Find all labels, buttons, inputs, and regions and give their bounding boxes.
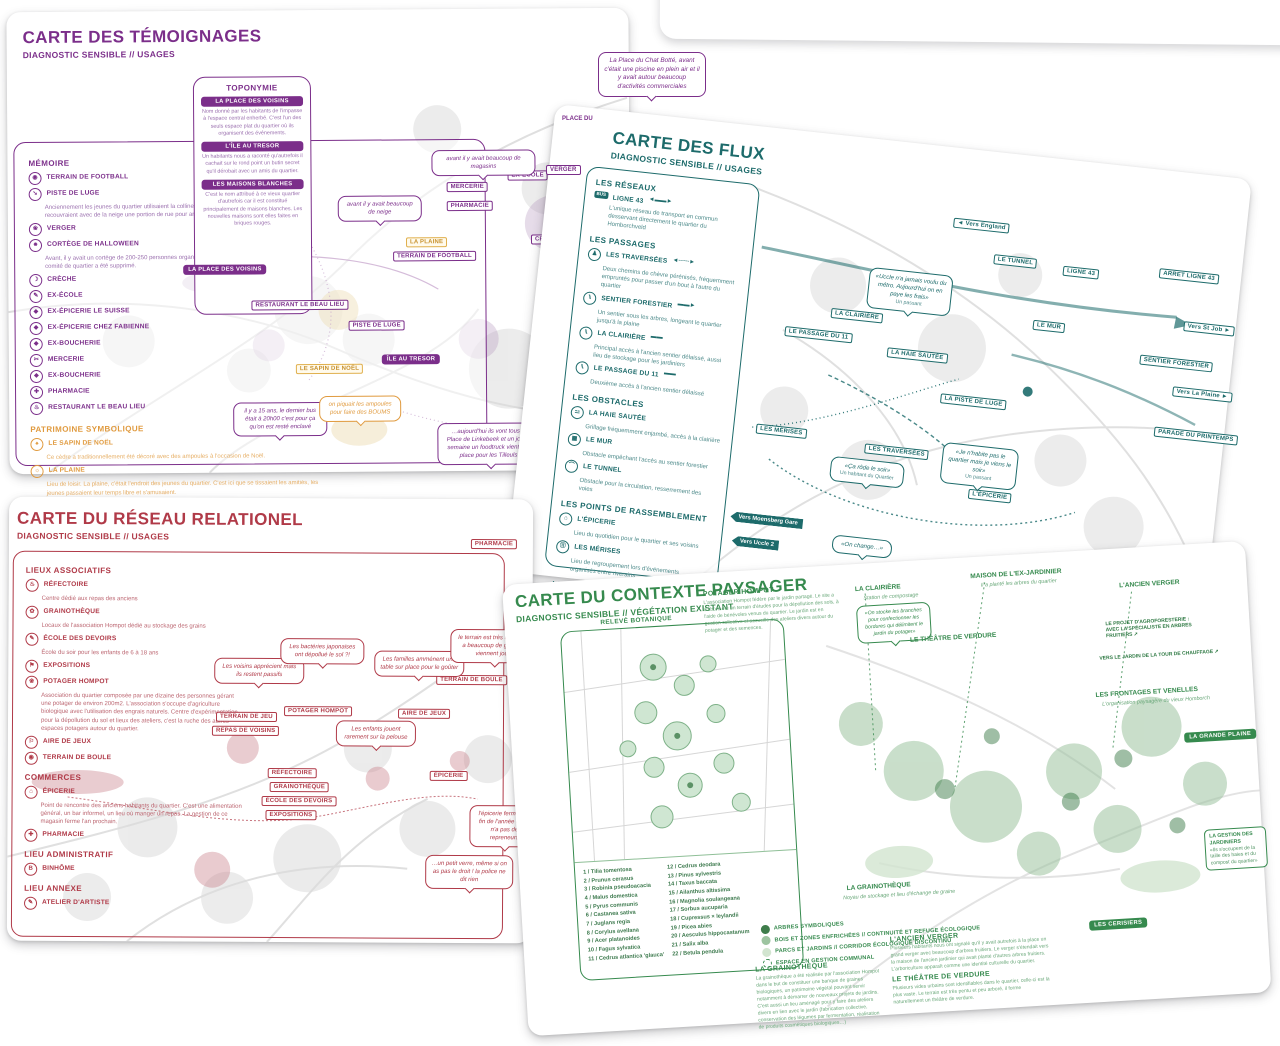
map-label-place-du: PLACE DU bbox=[562, 116, 593, 122]
map-sublabel-maison: Il a planté les arbres du quartier bbox=[981, 578, 1057, 588]
garden-plan-sketch bbox=[561, 619, 796, 862]
map-label-arret-ligne43: ARRET LIGNE 43 bbox=[1159, 268, 1220, 284]
card-reseau: CARTE DU RÉSEAU RELATIONEL DIAGNOSTIC SE… bbox=[7, 497, 533, 944]
swatch-dark-green bbox=[761, 924, 771, 934]
swatch-mid-green bbox=[761, 936, 771, 946]
bubble-neige: avant il y avait beaucoup de neige bbox=[338, 195, 422, 222]
legend-item-icon: ◆ bbox=[29, 306, 42, 319]
patrimoine-item-0: ♠ LE SAPIN DE NOËL bbox=[30, 436, 330, 451]
legend-item-icon: ✂ bbox=[30, 354, 43, 367]
reseau-item-1: ✚ PHARMACIE bbox=[24, 829, 244, 843]
bubble-magasins: avant il y avait beaucoup de magasins bbox=[431, 149, 535, 176]
map-label-refectoire: RÉFECTOIRE bbox=[268, 768, 317, 778]
reseau-item-6: ◉ TERRAIN DE BOULE bbox=[25, 751, 245, 765]
map-tag-vers-uccle2: Vers Uccle 2 bbox=[731, 536, 779, 551]
map-label-traversees: LES TRAVERSÉES bbox=[864, 443, 929, 460]
reseau-item-0: ⌂ ÉPICERIE bbox=[25, 785, 245, 799]
obstacles-list: ⚍ LA HAIE SAUTÉE Grillage fréquemment en… bbox=[562, 405, 722, 507]
map-label-ligne43: LIGNE 43 bbox=[1062, 266, 1099, 280]
section-associatifs: LIEUX ASSOCIATIFS bbox=[26, 566, 246, 576]
map-label-merises: LES MÉRISES bbox=[756, 424, 807, 439]
toponymie-tag-1: L'ÎLE AU TRESOR bbox=[201, 141, 303, 152]
section-administratif: LIEU ADMINISTRATIF bbox=[24, 850, 244, 860]
toponymie-panel: TOPONYMIE LA PLACE DES VOISINS Nom donné… bbox=[193, 76, 313, 315]
page-title: CARTE DU RÉSEAU RELATIONEL bbox=[17, 509, 303, 530]
legend-item-11: ✚ PHARMACIE bbox=[30, 384, 330, 399]
map-label-expositions: EXPOSITIONS bbox=[265, 810, 316, 820]
map-label-restaurant: RESTAURANT LE BEAU LIEU bbox=[251, 300, 348, 311]
map-label-terrain-football: TERRAIN DE FOOTBALL bbox=[393, 251, 476, 262]
map-label-grainotheque: GRAINOTHÈQUE bbox=[270, 782, 329, 792]
legend-item-icon: ➘ bbox=[29, 188, 42, 201]
legend-item-icon: ♨ bbox=[30, 402, 43, 415]
map-label-vers-la-plaine: Vers La Plaine ► bbox=[1172, 386, 1232, 402]
species-col2: 12 / Cedrus deodara13 / Pinus sylvestris… bbox=[667, 859, 751, 959]
section-annexe: LIEU ANNEXE bbox=[24, 884, 244, 894]
map-label-grainotheque: LA GRAINOTHÈQUE bbox=[846, 881, 911, 892]
swatch-light-green bbox=[762, 947, 772, 957]
legend-item-7: ◆ EX-ÉPICERIE CHEZ FABIENNE bbox=[30, 320, 330, 335]
map-label-aire-de-jeux: AIRE DE JEUX bbox=[398, 709, 450, 719]
bubble-bacteries: Les bactéries japonaises ont dépollué le… bbox=[280, 638, 364, 665]
map-label-ancien-verger: L'ANCIEN VERGER bbox=[1119, 579, 1180, 590]
map-label-vers-st-job: Vers St Job ► bbox=[1183, 321, 1235, 336]
map-label-epicerie: L'ÉPICERIE bbox=[968, 489, 1012, 504]
map-label-repas-voisins: REPAS DE VOISINS bbox=[212, 726, 279, 736]
toponymie-heading: TOPONYMIE bbox=[201, 83, 303, 93]
toponymie-tag-2: LES MAISONS BLANCHES bbox=[202, 179, 304, 190]
commerces-list: ⌂ ÉPICERIE Point de rencontre des ancien… bbox=[24, 785, 244, 842]
reseau-item-0: ♨ RÉFECTOIRE bbox=[26, 579, 246, 593]
legend-item-icon: ◉ bbox=[29, 172, 42, 185]
card-paysager: CARTE DU CONTEXTE PAYSAGER DIAGNOSTIC SE… bbox=[502, 541, 1271, 1036]
potager-hompot-note: POTAGER HOMPOT L'association Hompot fédè… bbox=[703, 583, 841, 635]
map-label-terrain-de-jeu: TERRAIN DE JEU bbox=[216, 712, 277, 722]
reseau-item-5: ⚐ AIRE DE JEUX bbox=[25, 735, 245, 749]
bubble-metro: «Uccle n'a jamais voulu du métro. Aujour… bbox=[866, 267, 954, 317]
map-label-mercerie: MERCERIE bbox=[447, 182, 488, 192]
reseau-item-2: ✎ ÉCOLE DES DEVOIRS bbox=[25, 633, 245, 647]
legend-item-icon: ❀ bbox=[29, 223, 42, 236]
page-title: CARTE DES TÉMOIGNAGES bbox=[23, 26, 262, 48]
reseau-item-0: B BINHÔME bbox=[24, 863, 244, 877]
map-label-haie-sautee: LA HAIE SAUTÉE bbox=[887, 347, 948, 363]
legend-item-8: ◆ EX-BOUCHERIE bbox=[30, 336, 330, 351]
map-sublabel-clairiere: Station de compostage bbox=[863, 592, 918, 601]
associatifs-list: ♨ RÉFECTOIRE Centre dédié aux repas des … bbox=[25, 579, 246, 766]
legend-item-icon: ◆ bbox=[30, 370, 43, 383]
toponymie-list: LA PLACE DES VOISINS Nom donné par les h… bbox=[201, 96, 304, 228]
map-label-verger: VERGER bbox=[546, 165, 581, 175]
map-label-sentier-forestier: SENTIER FORESTIER bbox=[1139, 355, 1213, 373]
map-label-passage-11: LE PASSAGE DU 11 bbox=[784, 326, 852, 343]
reseau-item-3: ⚑ EXPOSITIONS bbox=[25, 660, 245, 674]
map-label-tunnel: LE TUNNEL bbox=[993, 254, 1037, 269]
bubble-rode-le-soir: «Ça rôde le soir» Un habitant du Quartie… bbox=[829, 456, 905, 489]
legend-item-9: ✂ MERCERIE bbox=[30, 352, 330, 367]
reseau-item-1: ✿ GRAINOTHÈQUE bbox=[26, 606, 246, 620]
map-label-la-plaine: LA PLAINE bbox=[406, 237, 447, 247]
reseau-item-0: ✎ ATELIER D'ARTISTE bbox=[24, 897, 244, 911]
bubble-dernier-bus: il y a 15 ans, le dernier bus était à 20… bbox=[233, 402, 327, 437]
map-label-parade: PARADE DU PRINTEMPS bbox=[1154, 427, 1238, 446]
map-tag-grande-plaine: LA GRANDE PLAINE bbox=[1184, 729, 1256, 743]
legend-item-icon: ◆ bbox=[30, 322, 43, 335]
map-label-piste-luge: LA PISTE DE LUGE bbox=[940, 393, 1007, 410]
map-tag-cerisiers: LES CERISIERS bbox=[1089, 917, 1148, 930]
map-label-clairiere: LA CLAIRIÈRE bbox=[831, 308, 884, 324]
bus-icon: BUS bbox=[594, 191, 608, 199]
map-label-clairiere: LA CLAIRIÈRE bbox=[855, 583, 901, 593]
bubble-on-change: «On change…» bbox=[831, 534, 893, 558]
bubble-petit-verre: …un petit verre, même si on as pas le dr… bbox=[425, 855, 513, 890]
passages-list: ♟ LES TRAVERSÉES ◄╌╌╌► Deux chemins de c… bbox=[574, 248, 740, 401]
block-grainotheque: LA GRAINOTHÈQUE La grainothèque a été ré… bbox=[755, 959, 883, 1031]
map-tag-ile-au-tresor: ÎLE AU TRESOR bbox=[382, 354, 441, 364]
gestion-jardiniers-box: LA GESTION DES JARDINIERS «Ils s'occupen… bbox=[1204, 826, 1268, 871]
toponymie-tag-0: LA PLACE DES VOISINS bbox=[201, 96, 303, 107]
legend-item-icon: ✎ bbox=[29, 290, 42, 303]
bubble-enfants-pelouse: Les enfants jouent rarement sur la pelou… bbox=[336, 720, 416, 747]
map-tag-place-des-voisins: LA PLACE DES VOISINS bbox=[183, 264, 267, 275]
annexe-list: ✎ ATELIER D'ARTISTE bbox=[24, 897, 244, 911]
administratif-list: B BINHÔME bbox=[24, 863, 244, 877]
map-label-pharmacie: PHARMACIE bbox=[471, 539, 517, 549]
page-subtitle: DIAGNOSTIC SENSIBLE // USAGES bbox=[17, 531, 303, 542]
map-label-jardin-tour-chauffage: VERS LE JARDIN DE LA TOUR DE CHAUFFAGE ➚ bbox=[1099, 649, 1219, 662]
bubble-boums: on piquait les ampoules pour faire des B… bbox=[319, 395, 401, 422]
legend-item-icon: ✚ bbox=[30, 386, 43, 399]
map-label-sapin-de-noel: LE SAPIN DE NOËL bbox=[296, 364, 363, 374]
map-label-le-mur: LE MUR bbox=[1032, 320, 1065, 333]
map-label-pharmacie: PHARMACIE bbox=[447, 201, 493, 211]
map-label-epicerie: ÉPICERIE bbox=[430, 771, 468, 781]
map-label-vers-england: ◄ Vers England bbox=[953, 218, 1010, 234]
block-theatre-verdure: LE THÉÂTRE DE VERDURE Plusieurs vides ur… bbox=[892, 967, 1053, 1006]
legend-item-icon: ☽ bbox=[29, 274, 42, 287]
legend-item-icon: ☻ bbox=[29, 239, 42, 252]
bubble-chat-botte: La Place du Chat Botté, avant c'était un… bbox=[598, 52, 706, 97]
legend-item-10: ◆ EX-BOUCHERIE bbox=[30, 368, 330, 383]
legend-item-icon: ◆ bbox=[30, 338, 43, 351]
species-col1: 1 / Tilia tomentosa2 / Prunus cerasus3 /… bbox=[583, 864, 665, 964]
reseau-item-4: ❀ POTAGER HOMPOT bbox=[25, 676, 245, 690]
legend-flux: LES RÉSEAUX BUS LIGNE 43 ◄▬▬► L'unique r… bbox=[544, 166, 760, 584]
background-card-edge bbox=[660, 0, 1280, 45]
page-subtitle: DIAGNOSTIC SENSIBLE // USAGES bbox=[23, 48, 262, 60]
section-commerces: COMMERCES bbox=[25, 772, 245, 782]
map-label-projet-agroforesterie: LE PROJET D'AGROFORESTERIE : AVEC LA SPÉ… bbox=[1105, 616, 1196, 639]
patrimoine-list: ♠ LE SAPIN DE NOËL Ce cèdre a traditionn… bbox=[30, 436, 330, 497]
poster-collage: CARTE DES TÉMOIGNAGES DIAGNOSTIC SENSIBL… bbox=[0, 0, 1280, 1046]
map-label-potager-hompot: POTAGER HOMPOT bbox=[284, 706, 352, 716]
map-tag-vers-moensberg: Vers Moensberg Gare bbox=[730, 511, 803, 529]
map-label-piste-de-luge: PISTE DE LUGE bbox=[349, 320, 405, 330]
bubble-habite-pas: «Je n'habite pas le quartier mais je vie… bbox=[939, 442, 1019, 491]
patrimoine-item-1: ☼ LA PLAINE bbox=[31, 463, 331, 478]
map-label-ecole-devoirs: ÉCOLE DES DEVOIRS bbox=[262, 796, 337, 806]
